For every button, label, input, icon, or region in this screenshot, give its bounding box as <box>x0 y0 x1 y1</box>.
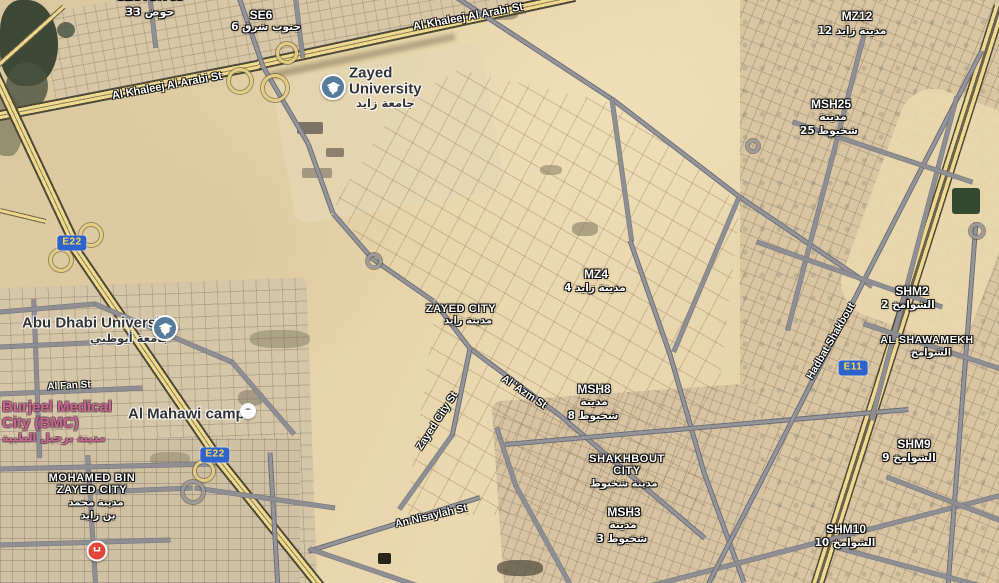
map-canvas[interactable]: SECTOR 33حوض 33SE6جنوب شرق 6MZ12مدينة زا… <box>0 0 999 583</box>
pin-tail <box>92 552 102 560</box>
poi-label[interactable]: Burjeel Medical <box>2 399 112 416</box>
hospital-icon[interactable]: H <box>87 541 108 562</box>
poi-label[interactable]: University <box>349 81 422 98</box>
poi-label[interactable]: جامعة زايد <box>356 96 415 110</box>
poi-label[interactable]: City (BMC) <box>2 415 79 432</box>
poi-label[interactable]: Al Mahawi camp <box>128 406 245 423</box>
poi-label[interactable]: Zayed <box>349 65 392 82</box>
generic-poi-icon[interactable] <box>240 403 256 419</box>
pin-tail <box>244 410 252 417</box>
pin-tail <box>160 328 170 336</box>
pin-tail <box>328 87 338 95</box>
graduation-cap-icon[interactable] <box>320 74 346 100</box>
poi-layer: ZayedUniversityجامعة زايدAbu Dhabi Unive… <box>0 0 999 583</box>
poi-label[interactable]: Abu Dhabi University <box>22 315 174 332</box>
poi-label[interactable]: مدينة برجيل الطبية <box>2 432 106 445</box>
graduation-cap-icon[interactable] <box>152 315 178 341</box>
